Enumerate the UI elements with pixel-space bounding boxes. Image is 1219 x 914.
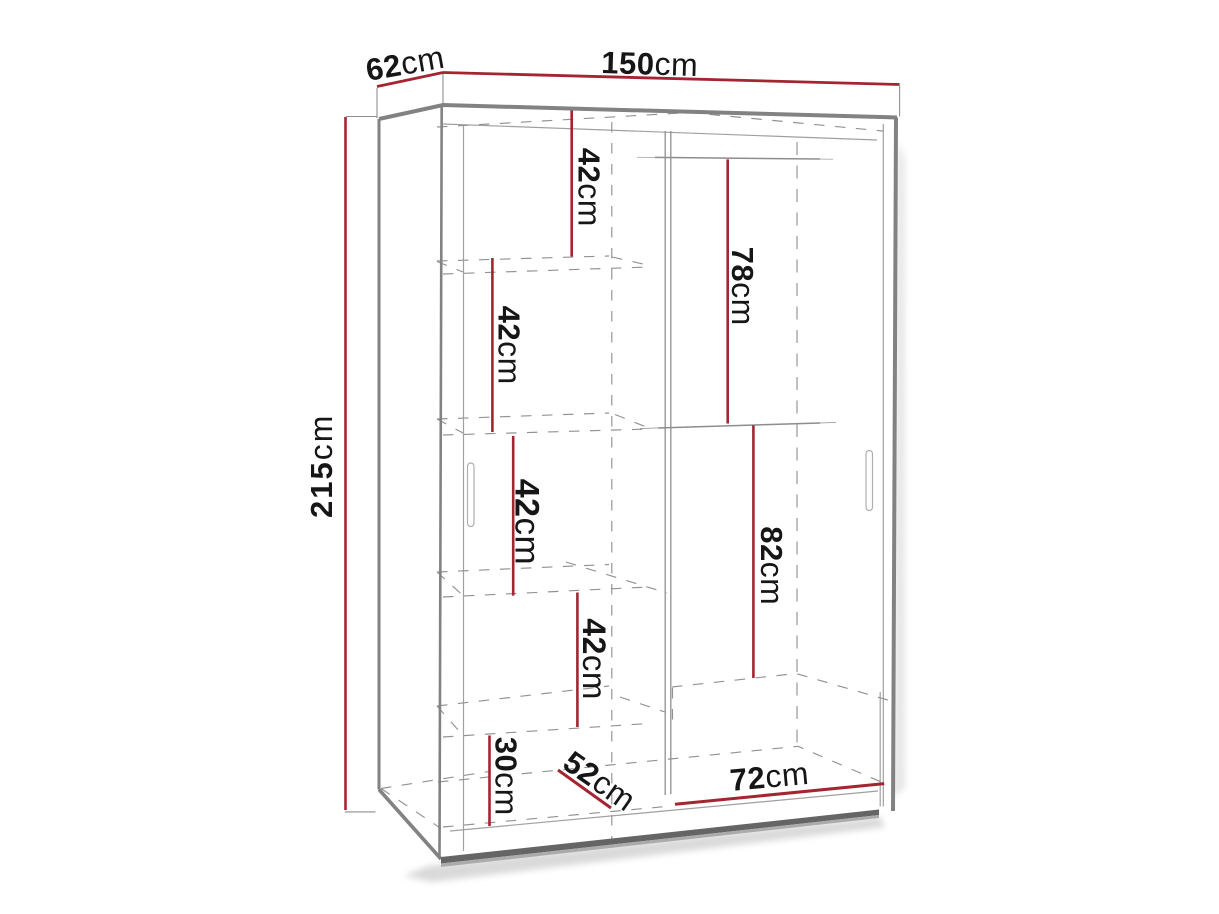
svg-text:72cm: 72cm: [728, 755, 810, 798]
svg-text:82cm: 82cm: [754, 526, 790, 605]
svg-text:42cm: 42cm: [572, 148, 608, 227]
svg-text:215cm: 215cm: [303, 414, 339, 518]
svg-text:78cm: 78cm: [725, 247, 761, 326]
svg-text:42cm: 42cm: [576, 618, 613, 700]
svg-text:42cm: 42cm: [508, 479, 547, 565]
svg-text:42cm: 42cm: [491, 306, 527, 385]
svg-text:150cm: 150cm: [601, 44, 699, 83]
svg-text:30cm: 30cm: [488, 737, 524, 816]
svg-text:62cm: 62cm: [363, 39, 447, 88]
